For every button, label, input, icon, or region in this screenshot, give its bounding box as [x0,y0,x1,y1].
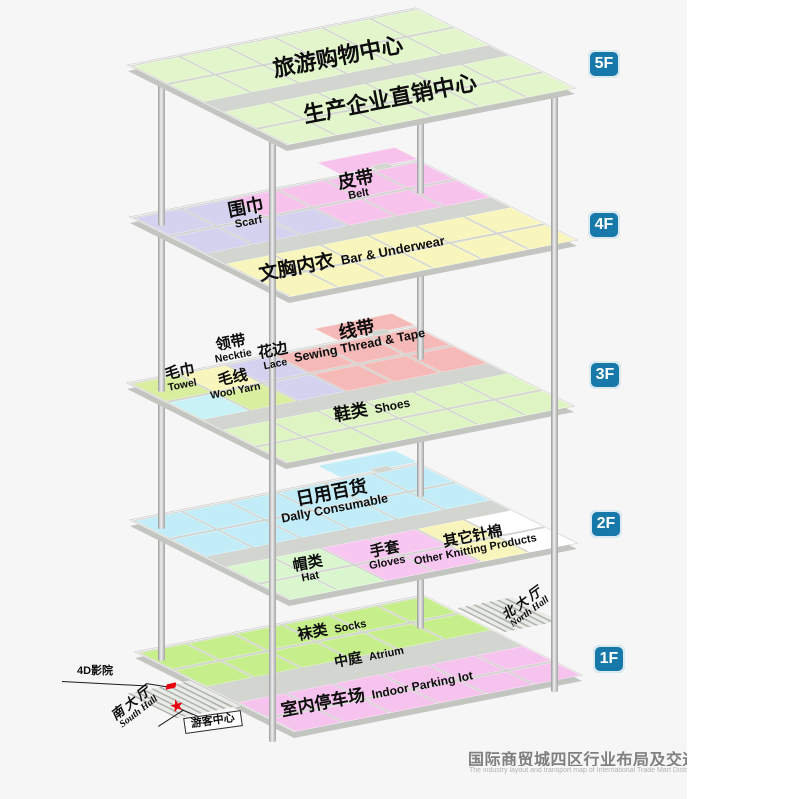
support-column [551,546,558,692]
floor-badge-3f: 3F [589,361,621,389]
support-column [269,459,276,610]
map-title: 国际商贸城四区行业布局及交通图 [468,746,687,766]
floor-badge-2f: 2F [590,510,622,538]
area-label: 4D影院 [77,666,113,678]
leader-line [62,681,148,686]
support-column [551,91,558,257]
area-label: 帽类Hat [292,553,327,586]
area-label: 花边Lace [257,341,292,374]
support-column [269,596,276,742]
floor-badge-4f: 4F [588,211,620,239]
map-subtitle: The industry layout and transport map of… [469,767,687,778]
area-label-zh: 游客中心 [190,713,235,731]
right-margin [687,0,799,799]
floor-badge-1f: 1F [593,645,625,673]
support-column [551,409,558,560]
support-column [269,293,276,473]
support-column [551,243,558,423]
trade-mart-floor-map: 1F2F3F4F5F旅游购物中心生产企业直销中心皮带Belt围巾Scarf文胸内… [0,0,799,799]
area-label-zh: 4D影院 [77,666,113,678]
floor-plate-5f [128,8,575,145]
floor-badge-5f: 5F [588,50,620,78]
area-label: 毛巾Towel [164,362,199,395]
